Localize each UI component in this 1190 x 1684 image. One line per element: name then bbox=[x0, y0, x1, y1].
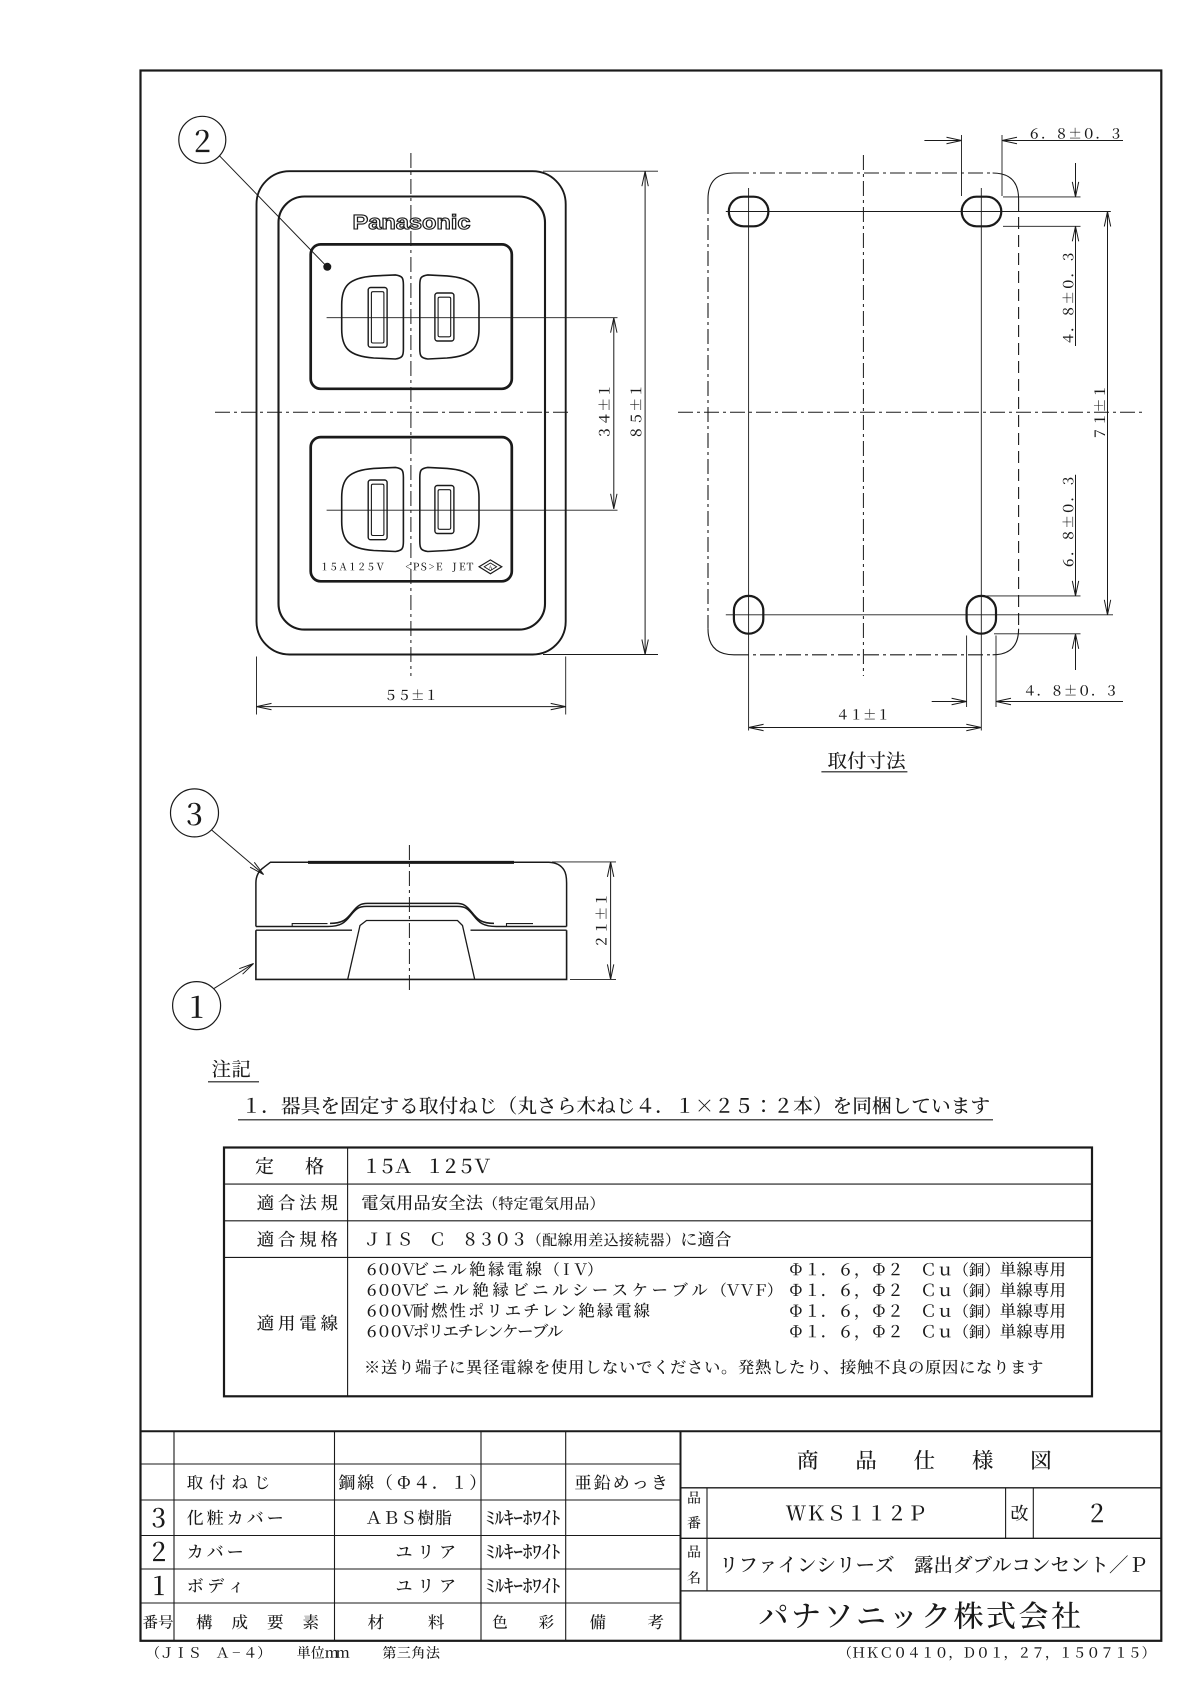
svg-text:A: A bbox=[488, 565, 493, 571]
